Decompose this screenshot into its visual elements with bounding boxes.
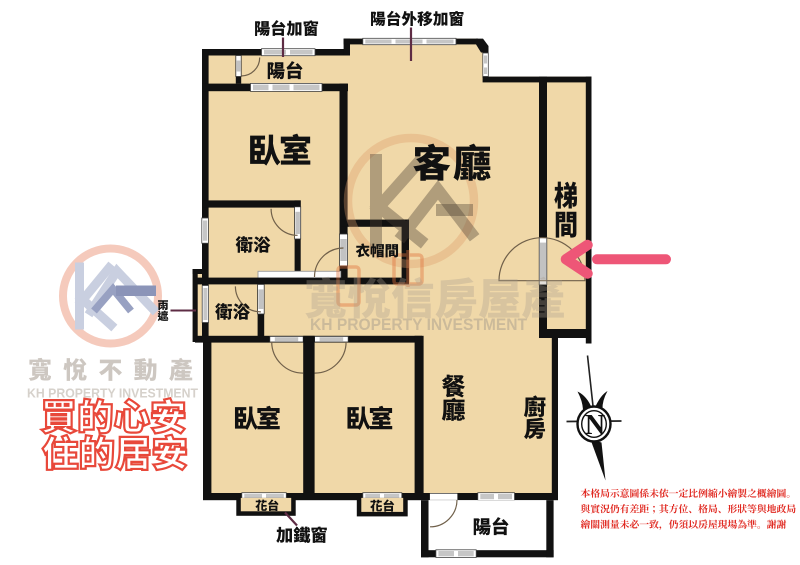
svg-text:N: N: [585, 410, 605, 441]
svg-text:KH PROPERTY INVESTMENT: KH PROPERTY INVESTMENT: [310, 315, 528, 334]
svg-text:KH PROPERTY INVESTMENT: KH PROPERTY INVESTMENT: [27, 387, 198, 401]
